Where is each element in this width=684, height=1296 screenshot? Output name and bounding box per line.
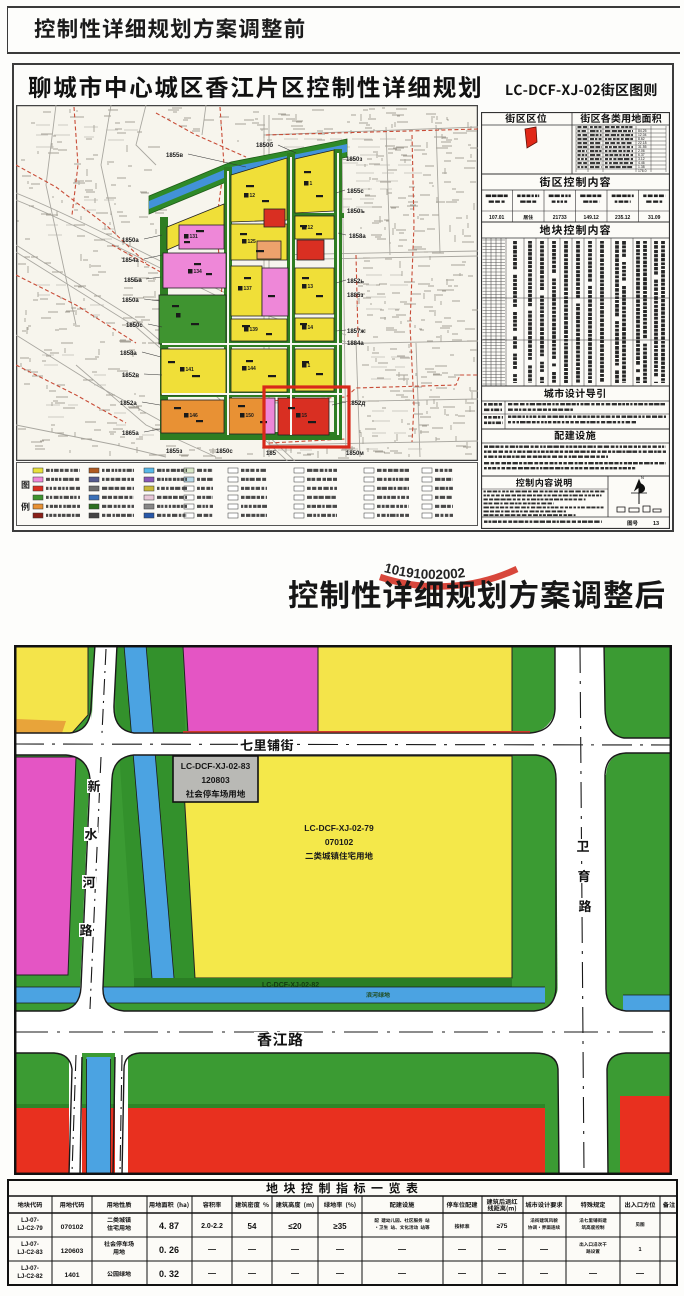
svg-text:LJ-C2-82: LJ-C2-82 <box>17 1274 43 1280</box>
svg-text:—: — <box>540 1245 548 1254</box>
svg-text:144: 144 <box>248 366 257 372</box>
svg-text:4. 87: 4. 87 <box>159 1221 179 1231</box>
svg-text:1852ь: 1852ь <box>347 279 364 285</box>
svg-text:1401: 1401 <box>64 1272 79 1279</box>
svg-text:LJ-07-: LJ-07- <box>21 1266 39 1272</box>
svg-text:070102: 070102 <box>325 837 354 847</box>
svg-text:12: 12 <box>250 193 256 199</box>
svg-text:1: 1 <box>638 1247 641 1253</box>
svg-text:1852в: 1852в <box>122 373 139 379</box>
svg-text:—: — <box>498 1245 506 1254</box>
svg-text:—: — <box>458 1245 466 1254</box>
svg-text:LJ-07-: LJ-07- <box>21 1218 39 1224</box>
svg-text:139: 139 <box>250 327 259 333</box>
svg-text:—: — <box>498 1269 506 1278</box>
svg-text:1850б: 1850б <box>256 142 273 149</box>
svg-text:1884а: 1884а <box>347 341 364 347</box>
svg-text:1: 1 <box>308 363 311 369</box>
svg-text:125: 125 <box>248 239 257 245</box>
svg-text:—: — <box>248 1269 256 1278</box>
svg-text:—: — <box>208 1245 216 1254</box>
svg-text:13: 13 <box>653 521 659 527</box>
svg-text:137: 137 <box>244 286 253 292</box>
svg-text:146: 146 <box>190 413 199 419</box>
svg-text:1850з: 1850з <box>346 157 362 163</box>
svg-text:14: 14 <box>308 325 314 331</box>
svg-text:235.12: 235.12 <box>615 215 631 221</box>
svg-text:31.09: 31.09 <box>648 215 661 221</box>
svg-text:12: 12 <box>308 225 314 231</box>
svg-text:LJ-07-: LJ-07- <box>21 1242 39 1248</box>
svg-text:149.12: 149.12 <box>584 215 600 221</box>
svg-text:1852а: 1852а <box>120 401 137 407</box>
svg-text:—: — <box>336 1269 344 1278</box>
svg-text:54: 54 <box>248 1222 257 1231</box>
svg-text:1854а: 1854а <box>122 258 139 264</box>
svg-text:—: — <box>540 1269 548 1278</box>
svg-text:LJ-C2-83: LJ-C2-83 <box>17 1250 43 1256</box>
svg-text:—: — <box>248 1245 256 1254</box>
svg-text:—: — <box>291 1269 299 1278</box>
svg-text:—: — <box>636 1269 644 1278</box>
svg-text:1: 1 <box>310 181 313 187</box>
svg-text:1852д: 1852д <box>348 401 365 407</box>
svg-text:1850ъ: 1850ъ <box>347 209 365 215</box>
svg-text:—: — <box>336 1245 344 1254</box>
svg-text:1850а: 1850а <box>122 238 139 244</box>
svg-text:1885з: 1885з <box>347 293 363 299</box>
svg-text:21733: 21733 <box>553 215 567 221</box>
svg-text:≥35: ≥35 <box>333 1222 347 1231</box>
svg-text:≤20: ≤20 <box>288 1222 302 1231</box>
svg-text:131: 131 <box>190 234 199 240</box>
svg-text:1855в: 1855в <box>166 153 183 159</box>
svg-text:LC-DCF-XJ-02-83: LC-DCF-XJ-02-83 <box>181 761 251 771</box>
svg-text:—: — <box>458 1269 466 1278</box>
svg-text:1850м: 1850м <box>346 451 364 457</box>
svg-text:—: — <box>291 1245 299 1254</box>
svg-text:141: 141 <box>186 367 195 373</box>
svg-text:≥75: ≥75 <box>497 1223 508 1230</box>
svg-text:LC-DCF-XJ-02-79: LC-DCF-XJ-02-79 <box>304 823 374 833</box>
svg-text:—: — <box>589 1269 597 1278</box>
svg-text:15: 15 <box>302 413 308 419</box>
svg-text:107.01: 107.01 <box>489 215 505 221</box>
svg-text:185Ба: 185Ба <box>124 278 142 284</box>
svg-text:1855з: 1855з <box>166 449 182 455</box>
svg-text:1865а: 1865а <box>122 431 139 437</box>
svg-text:13: 13 <box>308 284 314 290</box>
svg-text:1850с: 1850с <box>216 449 233 455</box>
svg-text:1850с: 1850с <box>126 323 143 329</box>
svg-text:185: 185 <box>266 451 277 457</box>
svg-text:LC-DCF-XJ-02-82: LC-DCF-XJ-02-82 <box>262 982 319 989</box>
svg-text:120603: 120603 <box>61 1248 84 1255</box>
svg-text:070102: 070102 <box>61 1224 84 1231</box>
svg-text:1858а: 1858а <box>349 234 366 240</box>
svg-text:LJ-C2-79: LJ-C2-79 <box>17 1226 43 1232</box>
svg-text:1857ж: 1857ж <box>347 329 365 335</box>
svg-text:2.0-2.2: 2.0-2.2 <box>201 1223 223 1230</box>
svg-text:N: N <box>641 475 644 480</box>
svg-text:134: 134 <box>194 269 203 275</box>
svg-text:1850а: 1850а <box>122 298 139 304</box>
svg-text:0. 26: 0. 26 <box>159 1245 179 1255</box>
svg-text:176.0: 176.0 <box>638 169 647 173</box>
svg-text:1855с: 1855с <box>347 189 364 195</box>
svg-text:0. 32: 0. 32 <box>159 1269 179 1279</box>
svg-text:—: — <box>208 1269 216 1278</box>
svg-text:150: 150 <box>246 413 255 419</box>
svg-text:—: — <box>398 1245 406 1254</box>
svg-text:120803: 120803 <box>201 775 230 785</box>
svg-text:—: — <box>398 1269 406 1278</box>
svg-text:1858а: 1858а <box>120 351 137 357</box>
